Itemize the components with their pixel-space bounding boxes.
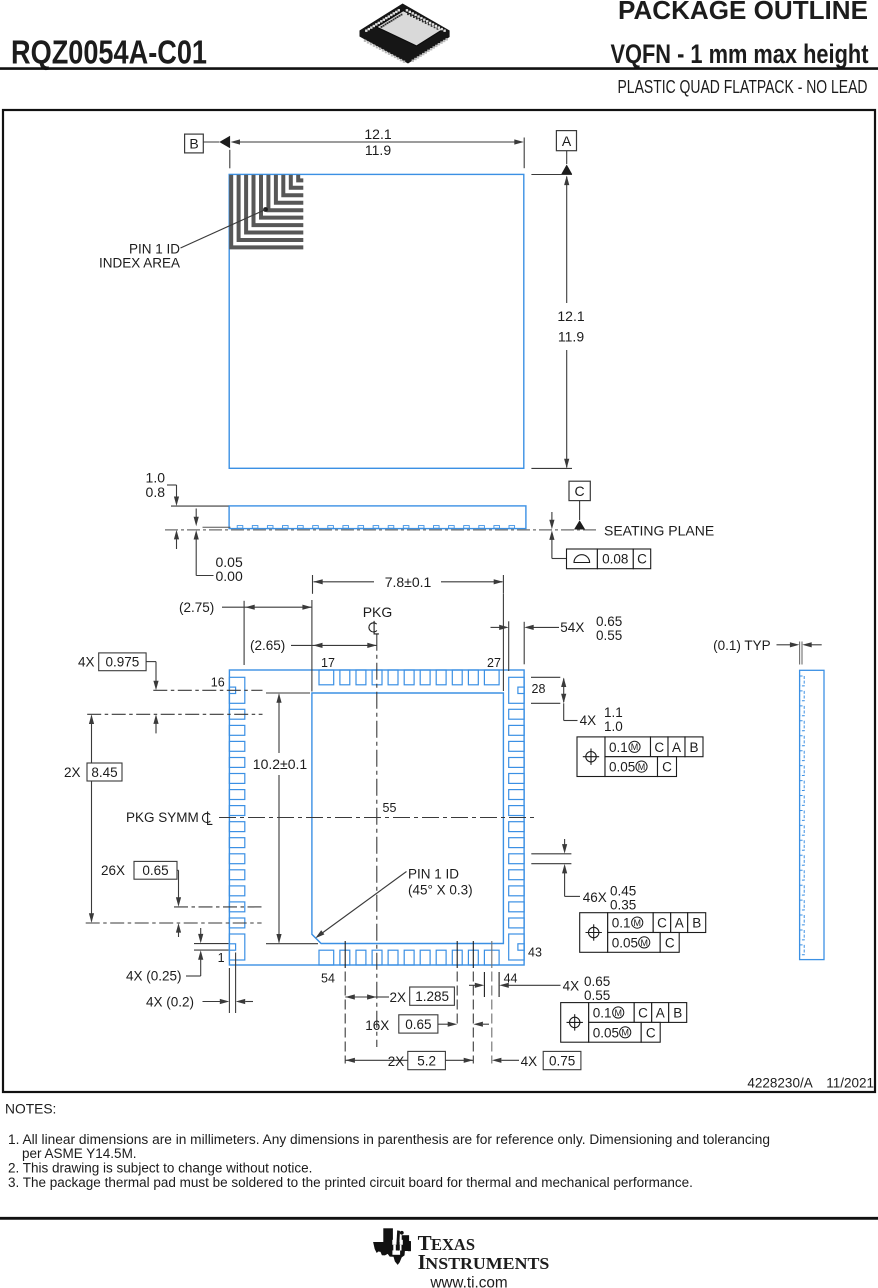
- svg-text:C: C: [646, 1025, 656, 1040]
- svg-text:C: C: [638, 1006, 648, 1021]
- svg-text:0.55: 0.55: [584, 988, 610, 1003]
- svg-text:0.975: 0.975: [106, 655, 140, 670]
- svg-text:0.35: 0.35: [610, 898, 636, 913]
- svg-text:C: C: [637, 552, 647, 567]
- svg-text:17: 17: [321, 656, 335, 670]
- svg-text:RQZ0054A-C01: RQZ0054A-C01: [11, 34, 207, 71]
- svg-text:46X: 46X: [583, 890, 607, 905]
- svg-text:M: M: [633, 918, 641, 928]
- svg-text:0.05: 0.05: [612, 935, 638, 950]
- svg-text:0.1: 0.1: [612, 916, 631, 931]
- svg-text:0.75: 0.75: [549, 1053, 575, 1068]
- svg-text:0.05: 0.05: [593, 1025, 619, 1040]
- svg-text:5.2: 5.2: [417, 1053, 436, 1068]
- svg-text:PIN 1 ID: PIN 1 ID: [129, 242, 180, 257]
- svg-text:0.45: 0.45: [610, 884, 636, 899]
- svg-text:2. This drawing is subject to: 2. This drawing is subject to change wit…: [8, 1160, 312, 1175]
- svg-text:PLASTIC QUAD FLATPACK - NO LEA: PLASTIC QUAD FLATPACK - NO LEAD: [618, 77, 868, 97]
- svg-text:26X: 26X: [101, 863, 125, 878]
- svg-text:C: C: [665, 935, 675, 950]
- svg-text:0.08: 0.08: [602, 552, 628, 567]
- svg-text:4228230/A 11/2021: 4228230/A 11/2021: [747, 1076, 874, 1091]
- svg-text:12.1: 12.1: [364, 126, 391, 142]
- svg-text:per ASME Y14.5M.: per ASME Y14.5M.: [22, 1146, 137, 1161]
- svg-text:0.65: 0.65: [584, 974, 610, 989]
- svg-text:3. The package thermal pad mus: 3. The package thermal pad must be solde…: [8, 1175, 693, 1190]
- svg-text:54: 54: [321, 972, 335, 986]
- svg-text:11.9: 11.9: [365, 142, 391, 158]
- svg-text:M: M: [621, 1028, 629, 1038]
- svg-text:28: 28: [532, 682, 546, 696]
- svg-text:VQFN - 1 mm max height: VQFN - 1 mm max height: [611, 39, 869, 69]
- svg-text:43: 43: [528, 946, 542, 960]
- svg-text:(0.1) TYP: (0.1) TYP: [713, 638, 771, 653]
- svg-text:54X: 54X: [560, 620, 584, 635]
- svg-text:C: C: [654, 740, 664, 755]
- svg-text:C: C: [575, 483, 585, 499]
- svg-text:(2.65): (2.65): [250, 638, 285, 653]
- svg-text:0.65: 0.65: [596, 614, 622, 629]
- svg-text:7.8±0.1: 7.8±0.1: [385, 574, 432, 590]
- svg-text:44: 44: [504, 972, 518, 986]
- svg-text:1.0: 1.0: [604, 719, 623, 734]
- svg-text:0.65: 0.65: [142, 863, 168, 878]
- svg-text:0.05: 0.05: [609, 760, 635, 775]
- svg-text:PIN 1 ID: PIN 1 ID: [408, 867, 459, 882]
- svg-text:4X: 4X: [521, 1054, 538, 1069]
- svg-text:B: B: [689, 740, 698, 755]
- svg-text:M: M: [640, 938, 648, 948]
- svg-text:PACKAGE OUTLINE: PACKAGE OUTLINE: [618, 0, 868, 25]
- svg-text:0.00: 0.00: [216, 568, 243, 584]
- svg-text:10.2±0.1: 10.2±0.1: [253, 756, 308, 772]
- svg-text:0.1: 0.1: [609, 740, 628, 755]
- svg-text:27: 27: [487, 656, 501, 670]
- svg-text:PKG SYMM: PKG SYMM: [126, 810, 199, 825]
- svg-text:0.1: 0.1: [593, 1006, 612, 1021]
- svg-text:B: B: [673, 1006, 682, 1021]
- svg-text:B: B: [189, 136, 198, 152]
- svg-text:4X (0.2): 4X (0.2): [146, 994, 194, 1009]
- svg-text:55: 55: [383, 801, 397, 815]
- svg-text:C: C: [657, 916, 667, 931]
- svg-text:B: B: [692, 916, 701, 931]
- svg-text:0.55: 0.55: [596, 628, 622, 643]
- svg-text:4X: 4X: [580, 713, 597, 728]
- svg-text:A: A: [675, 916, 684, 931]
- svg-text:PKG: PKG: [363, 604, 393, 620]
- svg-text:0.65: 0.65: [405, 1017, 431, 1032]
- svg-text:4X: 4X: [78, 655, 95, 670]
- svg-text:A: A: [672, 740, 681, 755]
- svg-text:A: A: [562, 133, 572, 149]
- svg-text:M: M: [631, 742, 639, 752]
- svg-text:12.1: 12.1: [557, 308, 584, 324]
- svg-text:C: C: [662, 760, 672, 775]
- svg-text:M: M: [638, 762, 646, 772]
- svg-text:EXAS: EXAS: [431, 1235, 475, 1254]
- svg-text:1.1: 1.1: [604, 705, 623, 720]
- svg-text:8.45: 8.45: [91, 765, 117, 780]
- svg-text:2X: 2X: [388, 1054, 405, 1069]
- svg-text:INDEX AREA: INDEX AREA: [99, 256, 180, 271]
- svg-text:1. All linear dimensions are i: 1. All linear dimensions are in millimet…: [8, 1132, 770, 1147]
- svg-text:16: 16: [211, 676, 225, 690]
- svg-text:0.8: 0.8: [146, 484, 166, 500]
- svg-text:2X: 2X: [390, 990, 407, 1005]
- svg-text:SEATING PLANE: SEATING PLANE: [604, 523, 714, 539]
- svg-text:16X: 16X: [365, 1018, 389, 1033]
- svg-text:NSTRUMENTS: NSTRUMENTS: [425, 1254, 549, 1273]
- svg-text:NOTES:: NOTES:: [5, 1102, 56, 1117]
- svg-text:1: 1: [218, 951, 225, 965]
- svg-text:www.ti.com: www.ti.com: [429, 1274, 507, 1288]
- svg-text:(2.75): (2.75): [179, 600, 214, 615]
- svg-text:4X (0.25): 4X (0.25): [126, 968, 182, 983]
- svg-text:1.285: 1.285: [415, 989, 449, 1004]
- svg-text:A: A: [656, 1006, 665, 1021]
- svg-text:M: M: [614, 1008, 622, 1018]
- svg-text:(45° X 0.3): (45° X 0.3): [408, 883, 473, 898]
- svg-text:2X: 2X: [64, 765, 81, 780]
- svg-text:4X: 4X: [563, 978, 580, 993]
- svg-text:11.9: 11.9: [558, 329, 584, 345]
